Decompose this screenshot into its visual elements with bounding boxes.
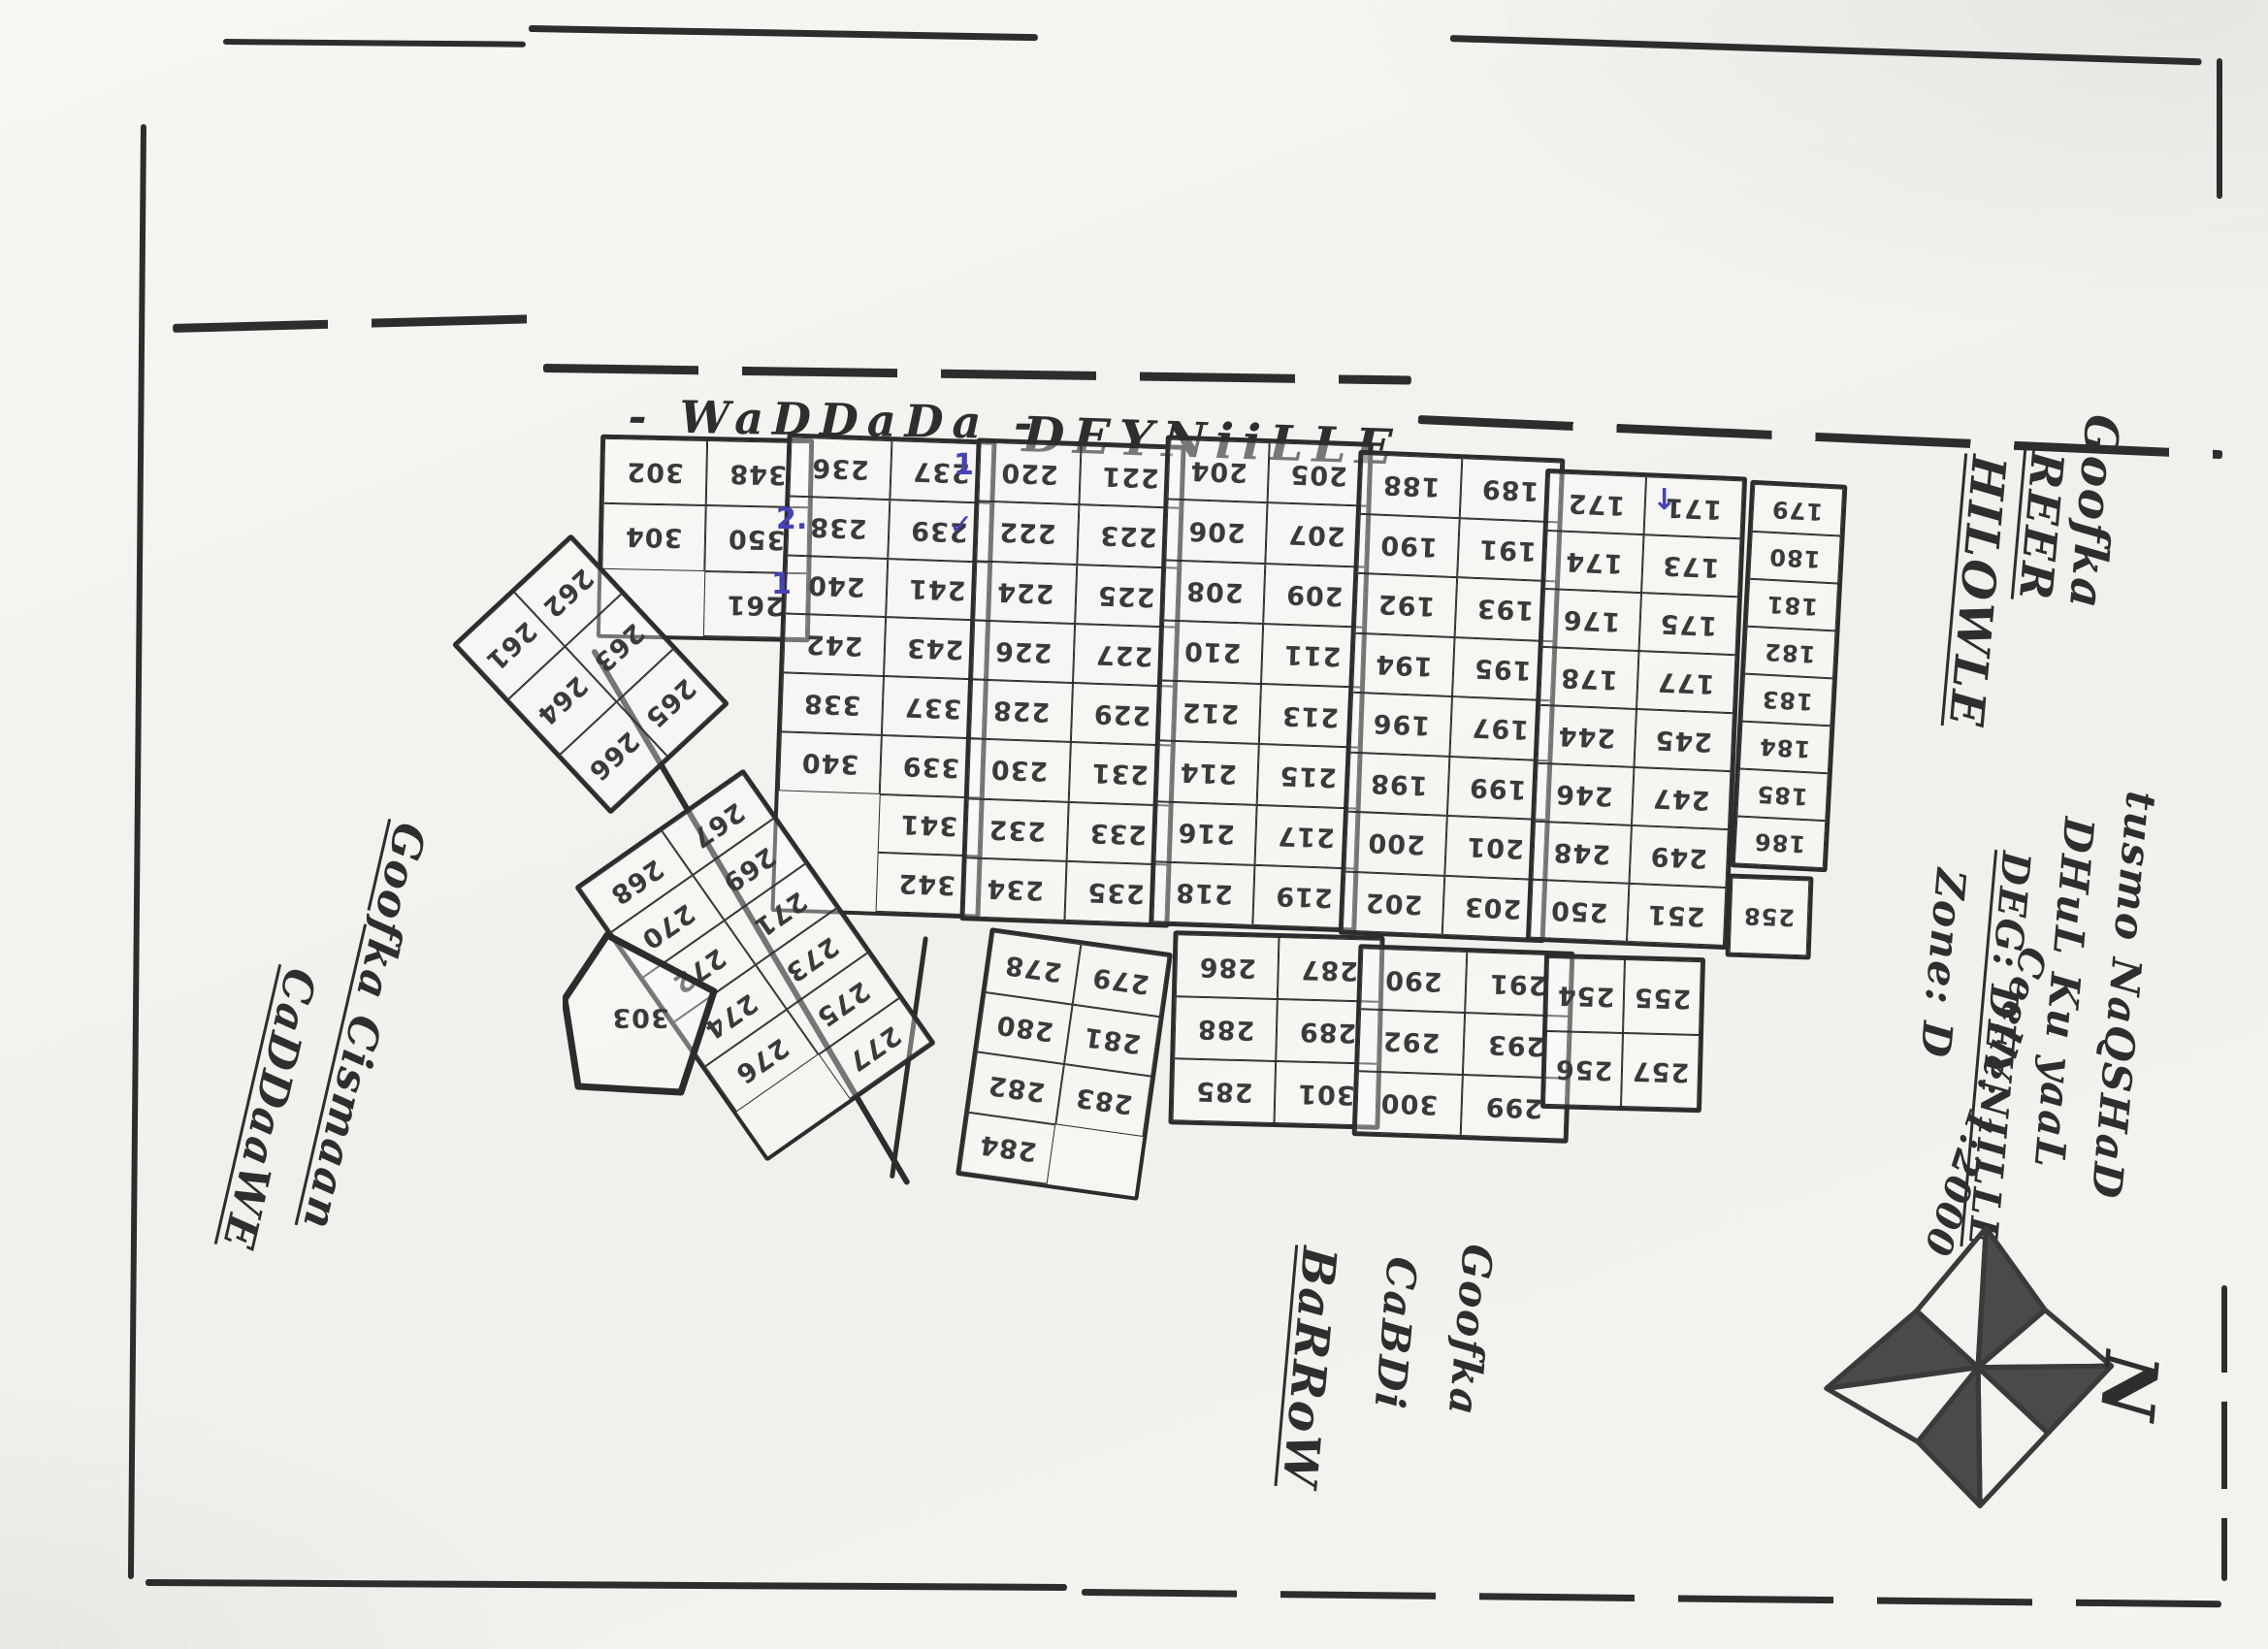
plot-number: 287 — [1300, 954, 1358, 986]
block-204-219: 2042052062072082092102112122132142152162… — [1149, 435, 1374, 932]
plot-cell: 340 — [779, 731, 882, 793]
plot-cell: 247 — [1632, 767, 1731, 829]
plot-number: 198 — [1369, 767, 1428, 799]
right-border-top — [2217, 58, 2222, 199]
plot-number: 257 — [1631, 1055, 1689, 1087]
plot-number: 235 — [1086, 877, 1145, 909]
plot-cell: 245 — [1634, 709, 1733, 771]
plot-number: 180 — [1768, 542, 1822, 572]
street-dashes-left — [173, 314, 536, 333]
plot-number: 290 — [1384, 964, 1442, 996]
plot-cell: 181 — [1747, 579, 1838, 631]
plot-cell: 179 — [1752, 484, 1843, 536]
plot-number: 192 — [1377, 589, 1436, 621]
plot-number: 213 — [1280, 699, 1339, 731]
plot-cell: 212 — [1159, 680, 1261, 744]
plot-number: 283 — [1073, 1082, 1134, 1119]
north-label: N — [2083, 1348, 2175, 1425]
plot-number: 220 — [1000, 457, 1058, 489]
plot-number: 227 — [1095, 639, 1153, 671]
plot-cell: 196 — [1350, 693, 1452, 757]
plot-cell: 192 — [1355, 573, 1457, 637]
plot-cell: 304 — [601, 503, 705, 571]
plot-number: 258 — [1743, 902, 1796, 931]
plot-number: 202 — [1364, 887, 1423, 919]
bottom-border-segment-1 — [146, 1579, 1067, 1591]
plot-number: 230 — [990, 754, 1049, 786]
plot-number: 196 — [1372, 708, 1431, 740]
plot-cell: 207 — [1265, 502, 1367, 566]
plot-cell: 257 — [1621, 1033, 1700, 1109]
plot-cell: 210 — [1161, 620, 1263, 684]
owner-bottom-barrow: BaRRoW — [1271, 1245, 1346, 1490]
plot-number: 243 — [906, 632, 964, 664]
plot-cell: 177 — [1636, 651, 1735, 713]
plot-number: 173 — [1662, 549, 1721, 581]
plot-cell: 205 — [1268, 442, 1370, 506]
plot-number: 175 — [1659, 607, 1718, 639]
plot-303-pentagon: 303 — [563, 931, 718, 1098]
plot-number: 216 — [1177, 817, 1235, 849]
plot-number: 291 — [1488, 968, 1546, 1000]
plot-number: 288 — [1196, 1013, 1254, 1045]
plot-number: 265 — [639, 672, 702, 733]
plot-cell: 222 — [976, 501, 1079, 565]
plot-number: 217 — [1277, 821, 1335, 853]
left-border — [128, 124, 146, 1579]
plot-cell: 208 — [1163, 560, 1265, 624]
plot-cell: 180 — [1749, 532, 1840, 584]
plot-cell: 216 — [1155, 801, 1257, 865]
plot-number: 206 — [1187, 515, 1246, 547]
plot-number: 231 — [1091, 758, 1150, 790]
plot-cell: 178 — [1539, 647, 1638, 709]
block-258: 258 — [1726, 873, 1814, 959]
plot-cell: 285 — [1173, 1058, 1277, 1123]
plot-number: 204 — [1189, 455, 1247, 487]
bottom-border-segment-2 — [1082, 1589, 2221, 1607]
plot-number: 211 — [1282, 639, 1341, 671]
plot-cell: 302 — [603, 438, 707, 506]
plot-number: 197 — [1471, 712, 1530, 744]
plot-number: 299 — [1484, 1091, 1542, 1123]
plot-number: 174 — [1565, 545, 1624, 577]
plot-number: 256 — [1554, 1053, 1612, 1085]
plot-number: 242 — [805, 629, 863, 661]
plot-number: 207 — [1287, 519, 1345, 551]
plot-cell: 249 — [1629, 825, 1728, 888]
plot-number: 200 — [1367, 827, 1426, 859]
plot-number: 193 — [1475, 593, 1535, 625]
plot-number: 278 — [1002, 949, 1063, 986]
plot-cell: 190 — [1357, 513, 1459, 577]
block-179-186: 179180181182183184185186 — [1731, 480, 1848, 873]
plot-number: 262 — [536, 563, 599, 624]
plot-number: 261 — [480, 615, 543, 676]
plot-cell: 200 — [1345, 812, 1446, 876]
street-dashes-center — [543, 364, 1411, 384]
plot-number: 188 — [1381, 469, 1441, 501]
plot-number: 176 — [1563, 603, 1622, 635]
plot-number: 302 — [626, 456, 684, 487]
plot-number: 303 — [611, 1003, 668, 1033]
plot-number: 223 — [1099, 520, 1157, 552]
plot-number: 282 — [986, 1069, 1047, 1107]
plot-number: 183 — [1761, 685, 1814, 715]
plot-number: 181 — [1766, 590, 1820, 620]
plot-number: 195 — [1474, 653, 1533, 685]
plot-cell: 214 — [1157, 741, 1259, 805]
plot-number: 236 — [811, 452, 869, 484]
compass-star-icon — [1803, 1193, 2136, 1543]
plot-number: 190 — [1378, 530, 1438, 562]
plot-number: 232 — [988, 814, 1046, 846]
plot-number: 238 — [809, 511, 867, 543]
owner-bottom-cabdi: CaBDi — [1365, 1255, 1426, 1412]
plot-cell: 244 — [1538, 705, 1636, 767]
plot-cell: 209 — [1263, 564, 1365, 628]
blue-pen-mark: 1 — [771, 567, 792, 601]
plot-number: 284 — [977, 1129, 1038, 1167]
plot-number: 214 — [1179, 757, 1237, 789]
plot-number: 199 — [1469, 772, 1528, 804]
plot-number: 241 — [908, 573, 966, 605]
plot-cell: 226 — [972, 620, 1075, 683]
plot-cell: 248 — [1533, 822, 1632, 884]
plot-number: 189 — [1480, 473, 1539, 505]
plot-cell: 188 — [1360, 454, 1462, 518]
plot-cell: 206 — [1165, 500, 1267, 564]
plot-number: 179 — [1771, 495, 1825, 525]
plot-number: 300 — [1379, 1087, 1438, 1119]
plot-number: 266 — [582, 725, 645, 786]
plot-cell: 240 — [785, 555, 888, 617]
plot-cell: 183 — [1741, 674, 1832, 727]
plot-number: 338 — [803, 688, 861, 720]
plot-cell: 185 — [1736, 768, 1828, 821]
top-border-segment-3 — [1450, 35, 2202, 65]
plot-number: 340 — [801, 747, 859, 779]
plot-number: 222 — [998, 517, 1056, 549]
plot-cell: 198 — [1347, 752, 1449, 816]
plot-number: 209 — [1285, 579, 1344, 611]
plot-cell: 204 — [1168, 439, 1270, 503]
plot-number: 219 — [1275, 881, 1333, 913]
block-278-284: 278279280281282283284 — [956, 927, 1173, 1201]
plot-cell: 174 — [1544, 531, 1643, 593]
empty-area — [1048, 1124, 1144, 1197]
plot-cell: 230 — [968, 739, 1071, 802]
plot-number: 304 — [625, 522, 683, 553]
plot-number: 172 — [1568, 487, 1627, 519]
plot-cell: 236 — [789, 437, 891, 500]
plot-number: 178 — [1560, 662, 1619, 694]
plot-number: 234 — [986, 873, 1044, 905]
plot-number: 221 — [1101, 461, 1159, 493]
blue-pen-mark: ✓ — [949, 508, 973, 542]
plot-number: 301 — [1297, 1078, 1355, 1110]
plot-number: 263 — [588, 617, 651, 678]
plot-number: 342 — [897, 868, 956, 900]
plot-cell: 286 — [1176, 934, 1280, 999]
plot-number: 177 — [1657, 665, 1716, 697]
plot-number: 339 — [902, 750, 960, 782]
top-border-segment-2 — [529, 25, 1038, 41]
zone-label: Zone: D — [1911, 867, 1975, 1061]
plot-cell: 184 — [1739, 722, 1831, 774]
plot-number: 186 — [1754, 827, 1807, 857]
plot-number: 225 — [1097, 579, 1155, 611]
plot-number: 184 — [1759, 732, 1812, 762]
plot-number: 285 — [1195, 1075, 1253, 1107]
plot-cell: 251 — [1627, 884, 1726, 946]
plot-cell: 232 — [966, 798, 1069, 861]
plot-number: 279 — [1090, 961, 1151, 999]
plot-number: 254 — [1556, 980, 1614, 1012]
plot-number: 191 — [1478, 533, 1538, 566]
top-border-segment-1 — [223, 39, 526, 48]
plot-number: 251 — [1647, 898, 1706, 930]
plot-cell: 218 — [1152, 861, 1254, 925]
plot-number: 293 — [1486, 1029, 1544, 1061]
plot-number: 240 — [807, 570, 865, 602]
plot-cell: 173 — [1641, 534, 1740, 597]
plot-number: 244 — [1557, 720, 1616, 752]
plot-number: 289 — [1298, 1016, 1356, 1048]
plot-number: 248 — [1552, 836, 1611, 868]
plot-cell: 228 — [970, 679, 1073, 742]
plot-number: 205 — [1289, 459, 1347, 491]
owner-right-hilowle: HILOWLE — [1938, 453, 2016, 729]
scanned-cadastral-map: - WaDDaDa - DEYNiiLLE 302348304350261236… — [0, 0, 2268, 1649]
plot-number: 245 — [1654, 724, 1713, 756]
plot-number: 210 — [1183, 636, 1241, 668]
plot-cell: 172 — [1547, 472, 1646, 534]
plot-number: 233 — [1088, 817, 1147, 849]
plot-cell: 255 — [1623, 959, 1701, 1035]
plot-number: 208 — [1185, 575, 1244, 607]
plot-cell: 224 — [974, 561, 1077, 624]
plot-cell: 254 — [1546, 957, 1625, 1033]
plot-number: 249 — [1649, 840, 1708, 872]
plot-cell: 234 — [964, 857, 1067, 921]
plot-cell: 256 — [1544, 1031, 1623, 1107]
plot-number: 292 — [1382, 1026, 1441, 1058]
owner-left-line1: Goofka Cismaan — [293, 819, 435, 1236]
plot-number: 226 — [994, 635, 1053, 667]
plot-cell: 246 — [1535, 763, 1634, 825]
plot-number: 246 — [1555, 778, 1614, 810]
plot-number: 286 — [1198, 951, 1256, 983]
plot-number: 247 — [1652, 782, 1711, 814]
right-border-bottom — [2221, 1285, 2227, 1581]
plot-cell: 182 — [1744, 627, 1835, 679]
plot-number: 224 — [996, 576, 1054, 608]
plot-cell: 194 — [1352, 632, 1454, 696]
plot-number: 182 — [1764, 637, 1817, 667]
blue-pen-mark: 1 — [954, 448, 974, 482]
plot-cell: 250 — [1530, 880, 1629, 942]
plot-cell: 290 — [1360, 948, 1467, 1013]
plot-number: 348 — [729, 459, 787, 490]
plot-number: 203 — [1463, 890, 1522, 922]
plot-cell: 175 — [1639, 593, 1738, 655]
plot-number: 250 — [1550, 894, 1609, 926]
plot-number: 229 — [1093, 698, 1151, 730]
plot-number: 280 — [994, 1009, 1055, 1047]
plot-cell: 300 — [1356, 1071, 1463, 1136]
plot-number: 228 — [992, 695, 1051, 727]
plot-number: 194 — [1374, 648, 1433, 680]
plot-number: 264 — [531, 670, 594, 731]
plot-cell: 284 — [959, 1112, 1055, 1184]
plot-number: 185 — [1756, 780, 1809, 810]
plot-number: 255 — [1633, 982, 1691, 1014]
block-254-257: 254255256257 — [1540, 954, 1705, 1113]
plot-cell: 211 — [1261, 624, 1363, 688]
blue-pen-mark: ↓ — [1652, 483, 1676, 517]
plot-cell: 220 — [978, 442, 1081, 505]
plot-cell: 242 — [783, 614, 886, 676]
plot-number: 341 — [899, 809, 957, 841]
blue-pen-mark: 2. — [776, 502, 807, 536]
plot-cell: 202 — [1343, 871, 1444, 935]
plot-number: 201 — [1466, 831, 1525, 863]
plot-number: 281 — [1082, 1021, 1143, 1059]
plot-number: 215 — [1279, 760, 1337, 792]
plot-number: 337 — [904, 692, 962, 724]
plot-number: 212 — [1181, 696, 1239, 728]
plot-cell: 176 — [1542, 589, 1641, 651]
plot-cell: 292 — [1358, 1010, 1465, 1075]
plot-cell: 338 — [781, 672, 884, 734]
block-171-178-244-251: 1721711741731761751781772442452462472482… — [1526, 469, 1747, 950]
owner-bottom-goofka: Goofka — [1440, 1243, 1502, 1419]
plot-cell: 288 — [1174, 996, 1278, 1061]
plot-cell: 186 — [1734, 816, 1826, 868]
plot-cell: 258 — [1730, 878, 1810, 956]
plot-number: 218 — [1175, 877, 1233, 909]
